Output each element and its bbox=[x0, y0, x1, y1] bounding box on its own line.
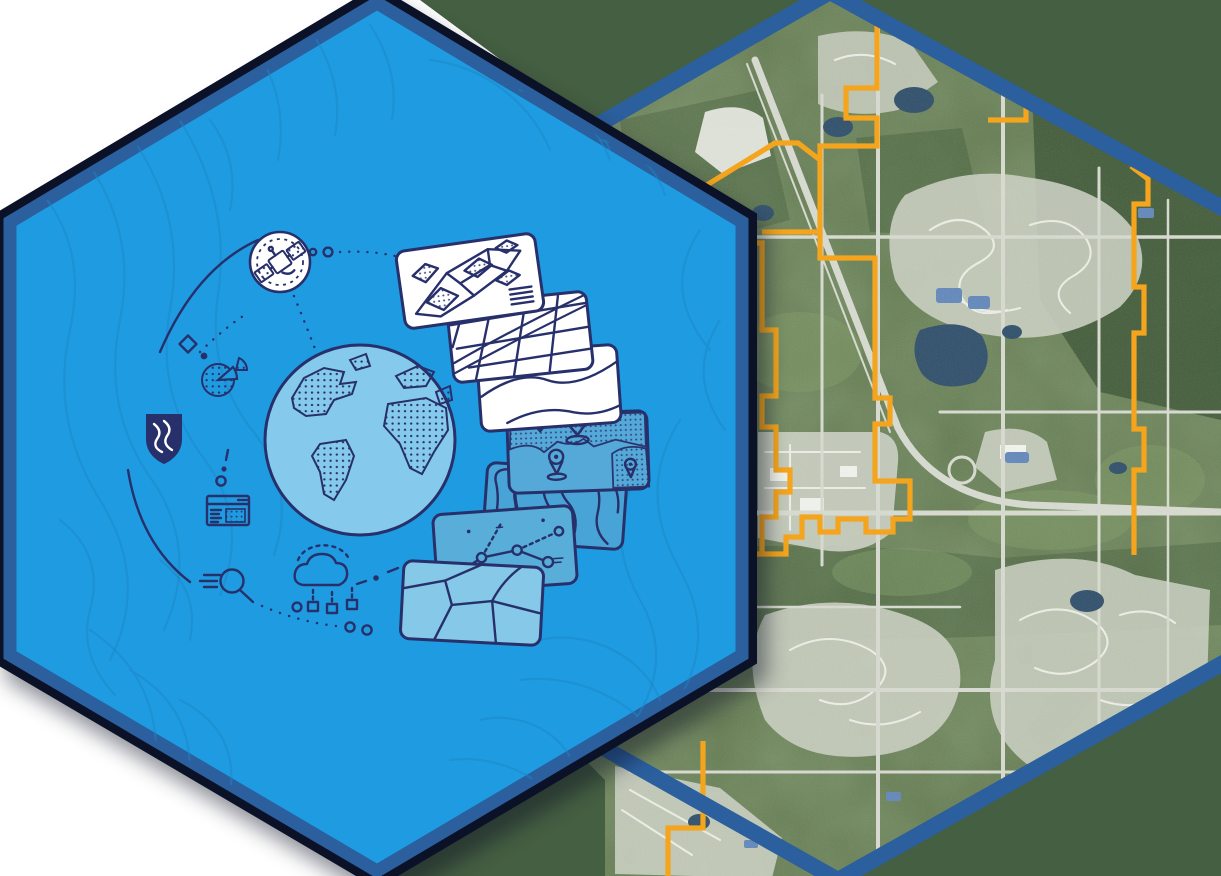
scene bbox=[0, 0, 1221, 876]
gis-composite-graphic bbox=[0, 0, 1221, 876]
globe-icon bbox=[265, 345, 455, 535]
zones-layer-card bbox=[400, 560, 544, 645]
satellite-icon bbox=[248, 232, 311, 292]
